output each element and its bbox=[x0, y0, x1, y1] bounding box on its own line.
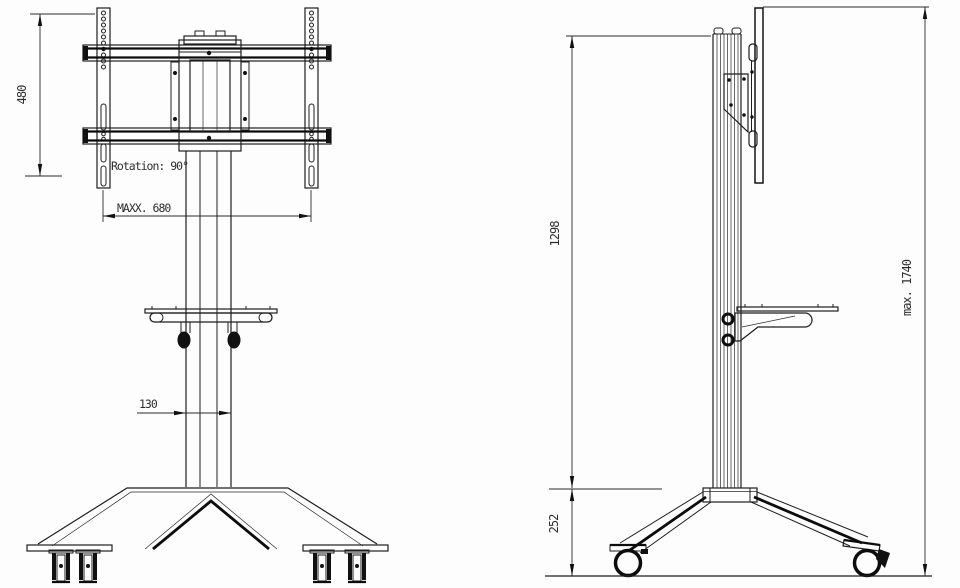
caster-icon bbox=[49, 550, 73, 582]
front-height-dimension: 480 bbox=[15, 14, 95, 176]
front-width-dimension-label: MAXX. 680 bbox=[117, 201, 171, 215]
front-height-dimension-label: 480 bbox=[15, 85, 29, 104]
caster-icon bbox=[76, 550, 100, 582]
rotation-label: Rotation: 90° bbox=[111, 159, 188, 173]
side-base-height-label: 252 bbox=[547, 514, 561, 533]
side-base-height-dimension: 252 bbox=[547, 489, 662, 576]
front-width-dimension: MAXX. 680 bbox=[103, 190, 311, 222]
side-max-height-label: max. 1740 bbox=[900, 259, 914, 316]
side-max-height-dimension: max. 1740 bbox=[763, 7, 929, 576]
technical-drawing-canvas: 480 bbox=[0, 0, 960, 588]
tv-cart-drawing: 480 bbox=[0, 0, 960, 588]
front-casters bbox=[49, 550, 369, 582]
side-view: 1298 252 max. 1740 bbox=[545, 7, 932, 576]
front-view: 480 bbox=[15, 8, 388, 582]
front-column-width-label: 130 bbox=[139, 397, 158, 411]
caster-icon bbox=[610, 545, 648, 576]
front-base bbox=[27, 488, 388, 551]
side-shelf bbox=[723, 304, 838, 345]
side-upper-height-dimension: 1298 bbox=[548, 36, 711, 488]
side-display-panel bbox=[755, 8, 763, 183]
front-right-rail bbox=[305, 8, 318, 188]
side-column bbox=[713, 28, 741, 488]
caster-icon bbox=[345, 550, 369, 582]
caster-icon bbox=[310, 550, 334, 582]
caster-icon bbox=[843, 540, 890, 576]
side-base bbox=[620, 488, 868, 553]
front-bottom-crossbar bbox=[83, 128, 331, 144]
front-column bbox=[186, 151, 231, 487]
front-left-rail bbox=[97, 8, 110, 188]
front-shelf bbox=[145, 306, 277, 349]
side-upper-height-label: 1298 bbox=[548, 221, 562, 247]
